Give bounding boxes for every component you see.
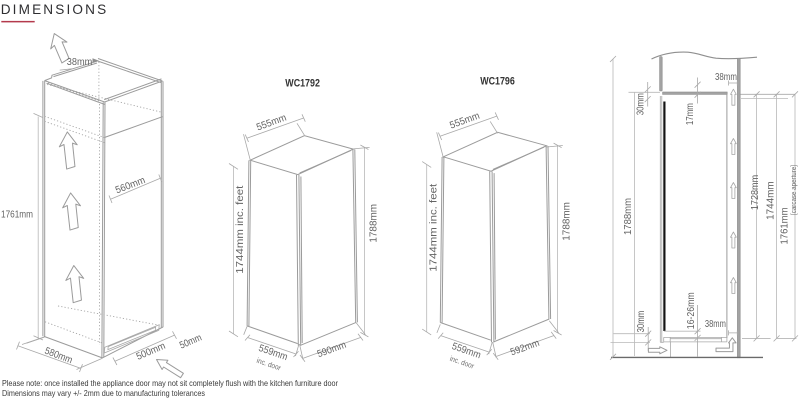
svg-text:WC1792: WC1792 <box>285 78 320 90</box>
svg-text:WC1796: WC1796 <box>480 76 515 88</box>
svg-text:30mm: 30mm <box>636 311 647 333</box>
svg-text:1761mm: 1761mm <box>779 208 790 245</box>
svg-text:Please note: once installed th: Please note: once installed the applianc… <box>2 379 338 388</box>
svg-text:38mm: 38mm <box>705 319 726 330</box>
svg-text:1744mm: 1744mm <box>765 181 776 220</box>
svg-text:Dimensions may vary +/- 2mm du: Dimensions may vary +/- 2mm due to manuf… <box>2 389 205 398</box>
svg-text:17mm: 17mm <box>685 103 696 125</box>
svg-text:38mm: 38mm <box>67 57 93 68</box>
svg-text:30mm: 30mm <box>636 93 647 115</box>
svg-text:1788mm: 1788mm <box>623 198 634 235</box>
svg-text:1761mm: 1761mm <box>1 209 33 220</box>
svg-text:1728mm: 1728mm <box>750 175 761 210</box>
svg-text:1788mm: 1788mm <box>562 202 573 241</box>
svg-text:[carcase aperture]: [carcase aperture] <box>791 165 798 215</box>
svg-text:38mm: 38mm <box>715 72 737 83</box>
svg-text:1744mm inc. feet: 1744mm inc. feet <box>235 185 246 273</box>
svg-text:1788mm: 1788mm <box>369 204 380 243</box>
svg-text:1744mm inc. feet: 1744mm inc. feet <box>428 184 439 272</box>
svg-text:16-26mm: 16-26mm <box>686 292 697 329</box>
